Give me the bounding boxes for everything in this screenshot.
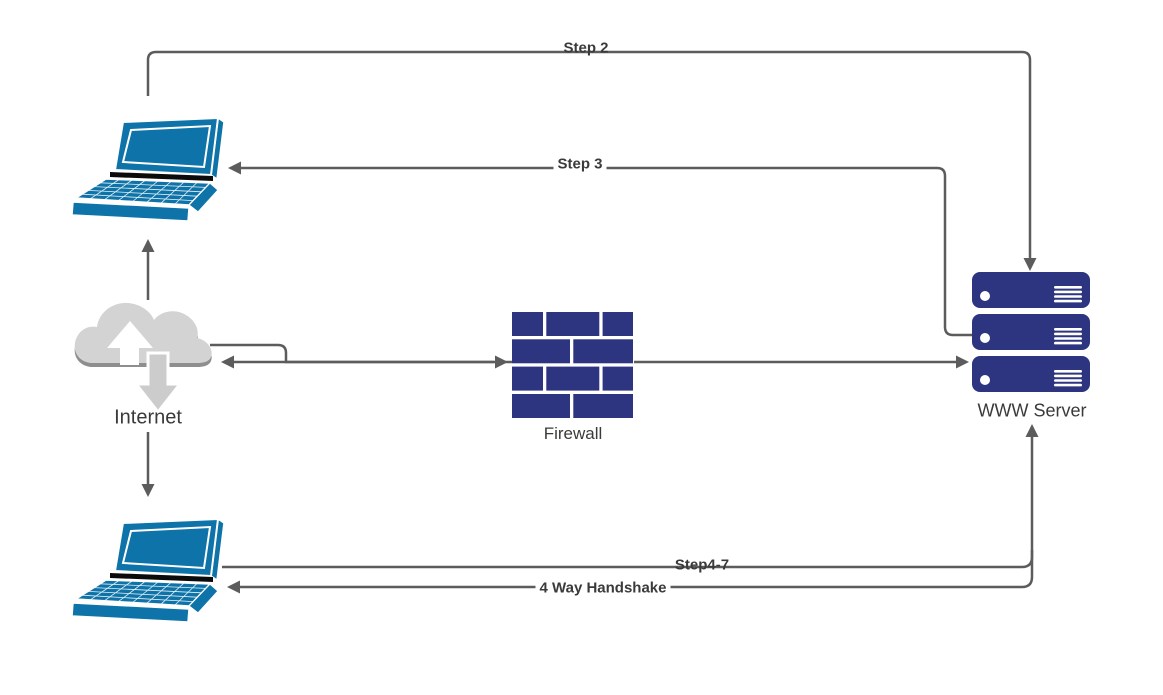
arrowhead-up-icon bbox=[1026, 424, 1039, 437]
connector-step4-7[interactable] bbox=[222, 424, 1039, 567]
www-server-label: WWW Server bbox=[978, 401, 1087, 422]
arrowhead-down-icon bbox=[1024, 258, 1037, 271]
arrowhead-down-icon bbox=[142, 484, 155, 497]
arrowhead-up-icon bbox=[142, 239, 155, 252]
node-firewall[interactable] bbox=[512, 312, 633, 418]
connector-internet-to-client-bottom[interactable] bbox=[142, 432, 155, 497]
arrowhead-left-icon bbox=[228, 162, 241, 175]
connector-internet-to-firewall[interactable] bbox=[210, 345, 508, 369]
server-stack-icon bbox=[972, 272, 1090, 394]
4-way-handshake-label: 4 Way Handshake bbox=[536, 580, 671, 597]
node-www-server[interactable] bbox=[972, 272, 1090, 394]
step4-7-label: Step4-7 bbox=[675, 557, 729, 574]
laptop-icon bbox=[71, 112, 224, 225]
diagram-canvas: Internet Firewall bbox=[0, 0, 1163, 695]
firewall-label: Firewall bbox=[544, 424, 603, 444]
node-client-laptop-bottom[interactable] bbox=[71, 513, 224, 626]
step3-label: Step 3 bbox=[553, 156, 606, 173]
firewall-brick-icon bbox=[512, 312, 633, 418]
internet-label: Internet bbox=[114, 407, 182, 430]
laptop-icon bbox=[71, 513, 224, 626]
step2-label: Step 2 bbox=[563, 40, 608, 57]
connector-firewall-to-server[interactable] bbox=[634, 356, 969, 369]
arrowhead-right-icon bbox=[956, 356, 969, 369]
node-internet[interactable] bbox=[73, 296, 223, 416]
connector-firewall-to-internet[interactable] bbox=[221, 356, 512, 369]
connector-internet-to-client-top[interactable] bbox=[142, 239, 155, 300]
connector-step3[interactable] bbox=[228, 162, 972, 336]
arrowhead-left-icon bbox=[227, 581, 240, 594]
node-client-laptop-top[interactable] bbox=[71, 112, 224, 225]
internet-cloud-icon bbox=[73, 296, 223, 416]
